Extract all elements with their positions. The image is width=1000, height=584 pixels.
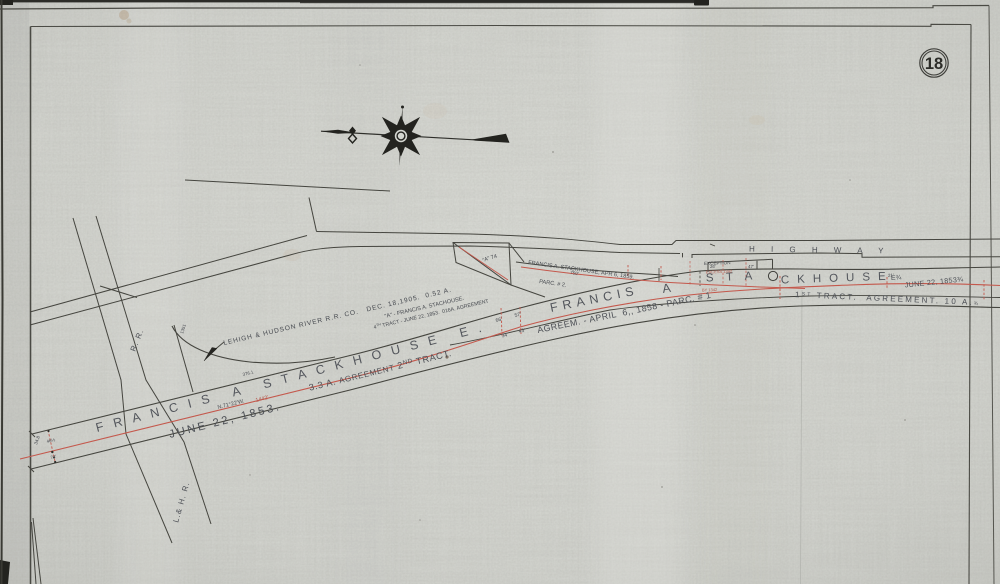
svg-text:18: 18 bbox=[925, 55, 943, 73]
svg-text:21': 21' bbox=[888, 273, 894, 278]
svg-text:EXCESS 1342: EXCESS 1342 bbox=[706, 269, 733, 275]
svg-text:26': 26' bbox=[710, 264, 716, 269]
svg-text:EXCEPTION: EXCEPTION bbox=[704, 260, 731, 266]
svg-text:BY 1342: BY 1342 bbox=[702, 287, 718, 293]
svg-text:47': 47' bbox=[748, 264, 754, 269]
